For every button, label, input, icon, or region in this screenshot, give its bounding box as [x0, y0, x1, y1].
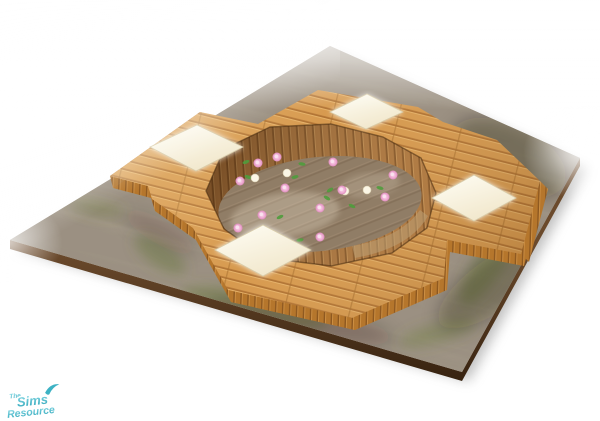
flower-white — [363, 186, 371, 194]
scene-render: The Sims Resource — [0, 0, 600, 421]
tsr-object-preview: The Sims Resource — [0, 0, 600, 421]
flower-pink — [389, 171, 398, 180]
watermark-logo: The Sims Resource — [5, 384, 63, 421]
flower-pink — [381, 193, 390, 202]
watermark-resource: Resource — [7, 404, 56, 421]
